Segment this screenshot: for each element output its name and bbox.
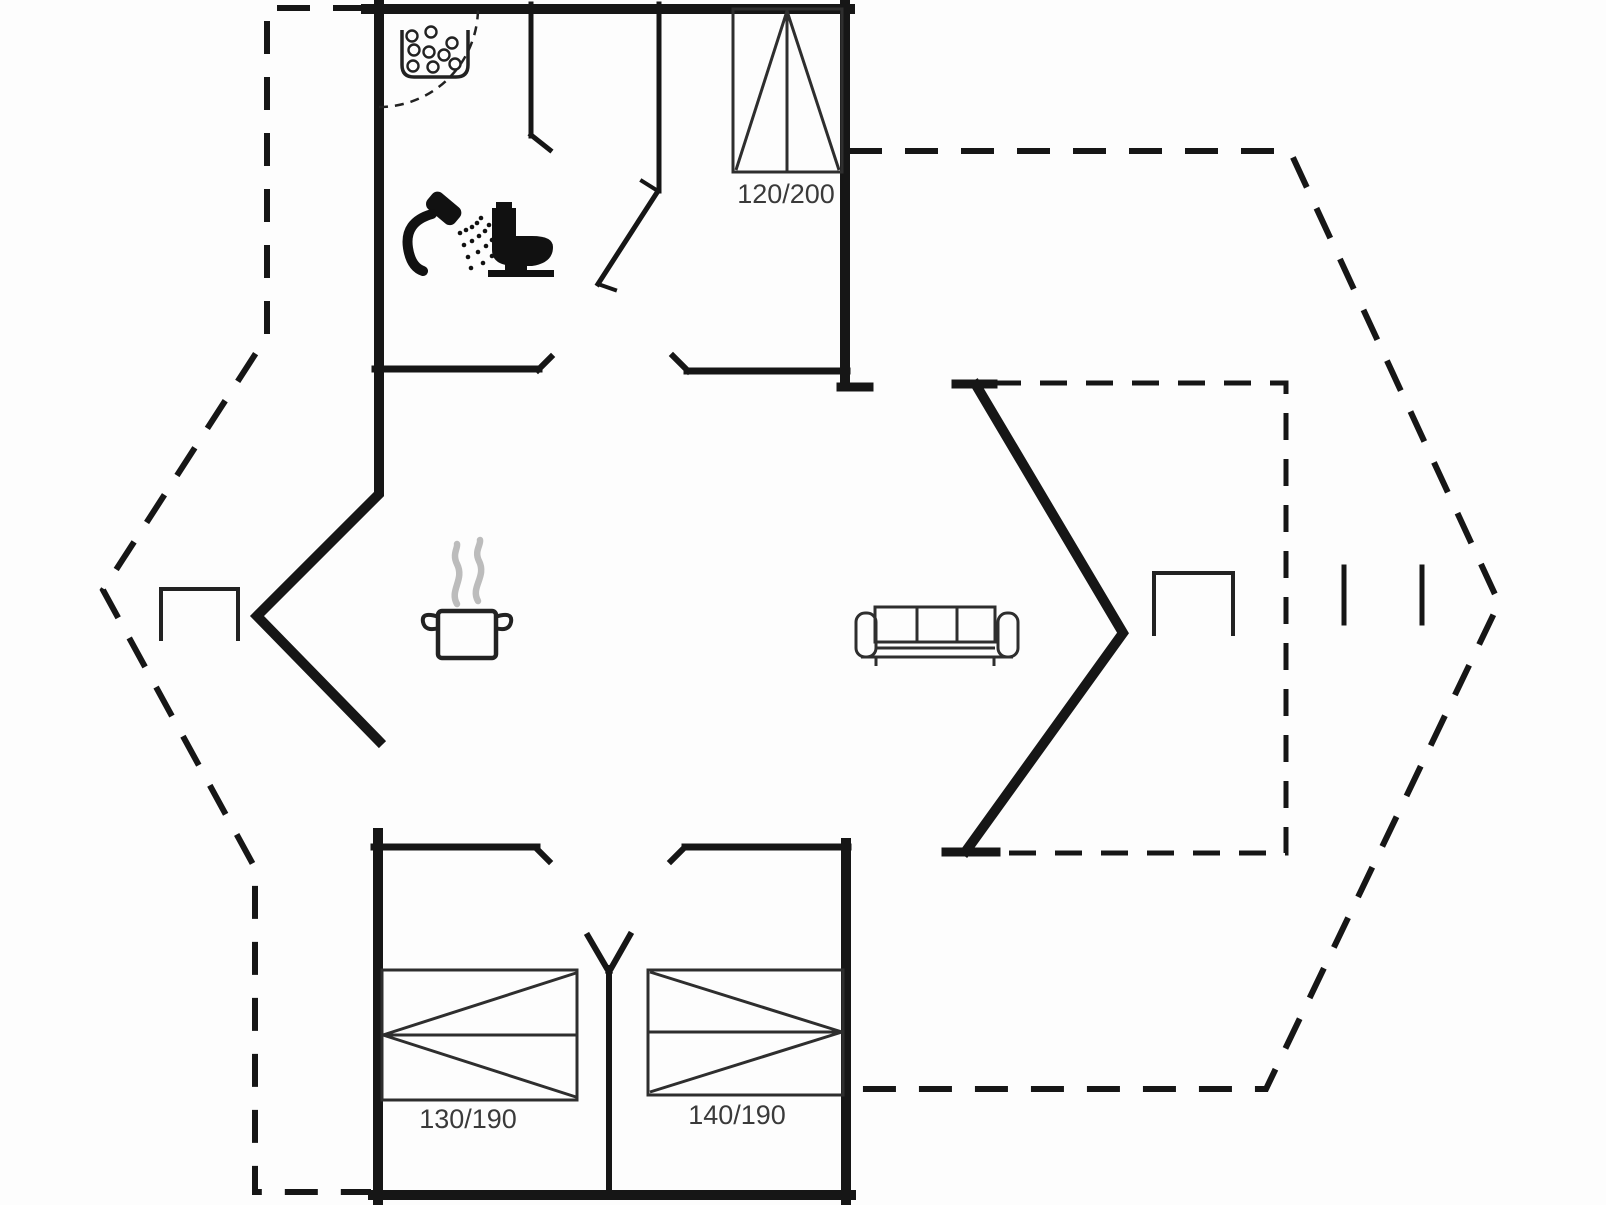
door-leaf bbox=[598, 191, 658, 284]
floorplan-page: 120/200 130/190 140/190 bbox=[0, 0, 1606, 1205]
wall-sink-divider-jamb bbox=[531, 135, 550, 150]
sofa-icon bbox=[856, 607, 1018, 666]
terrace-outline-right bbox=[849, 151, 1499, 1089]
wall-bedblock-north-left-jamb bbox=[536, 848, 549, 861]
bed-size-label: 130/190 bbox=[419, 1104, 517, 1134]
side-table-left-icon bbox=[161, 589, 238, 641]
side-table-right-outline bbox=[1154, 573, 1233, 636]
toilet-icon bbox=[488, 202, 554, 277]
sofa-cushions bbox=[875, 607, 995, 642]
door-leaf-tick-top bbox=[642, 181, 658, 191]
bed-diagonal-2 bbox=[787, 11, 839, 170]
terrace-rail-marks bbox=[1344, 567, 1422, 623]
toilet-bowl bbox=[492, 236, 553, 266]
door-leaf-tick-bottom bbox=[598, 284, 615, 290]
wall-bedblock-divider-arm-left bbox=[588, 936, 609, 972]
steam-icon bbox=[455, 540, 482, 604]
bed-diagonal-1 bbox=[736, 11, 787, 170]
double-bed-120x200: 120/200 bbox=[733, 9, 842, 209]
shower-head bbox=[423, 189, 464, 228]
cooking-pot-icon bbox=[423, 540, 511, 658]
pot-body bbox=[438, 611, 496, 658]
wall-bedblock-north-right-jamb bbox=[671, 848, 684, 861]
shower-hose bbox=[408, 214, 433, 271]
wall-bath-south-jamb bbox=[538, 357, 551, 370]
wall-right-chevron bbox=[966, 385, 1123, 851]
double-bed-140x190: 140/190 bbox=[648, 970, 843, 1130]
steam-left bbox=[455, 544, 460, 604]
sink-bubbles bbox=[407, 27, 461, 73]
toilet-base bbox=[488, 270, 554, 277]
toilet-tank bbox=[492, 208, 516, 238]
floorplan-svg: 120/200 130/190 140/190 bbox=[0, 0, 1606, 1205]
bed-diagonal-2 bbox=[383, 1035, 576, 1097]
sofa-arm-right bbox=[998, 613, 1018, 657]
wall-bedroom-south-jamb bbox=[673, 356, 688, 371]
double-bed-130x190: 130/190 bbox=[382, 970, 577, 1134]
inner-terrace-dashed-outline bbox=[994, 383, 1286, 853]
bed-size-label: 140/190 bbox=[688, 1100, 786, 1130]
walls bbox=[257, 4, 1123, 1200]
wall-left-chevron bbox=[257, 4, 379, 741]
inner-terrace-outline bbox=[994, 383, 1286, 853]
bed-size-label: 120/200 bbox=[737, 179, 835, 209]
side-table-right-icon bbox=[1154, 573, 1233, 636]
bed-diagonal-2 bbox=[650, 1032, 842, 1092]
shower-icon bbox=[408, 189, 506, 271]
wall-bedblock-divider-arm-right bbox=[609, 935, 630, 972]
bed-diagonal-1 bbox=[650, 972, 842, 1032]
side-table-left-outline bbox=[161, 589, 238, 641]
sofa-arm-left bbox=[856, 613, 876, 657]
bed-diagonal-1 bbox=[383, 973, 576, 1035]
kitchen-sink-icon bbox=[402, 27, 468, 78]
steam-right bbox=[476, 540, 481, 601]
